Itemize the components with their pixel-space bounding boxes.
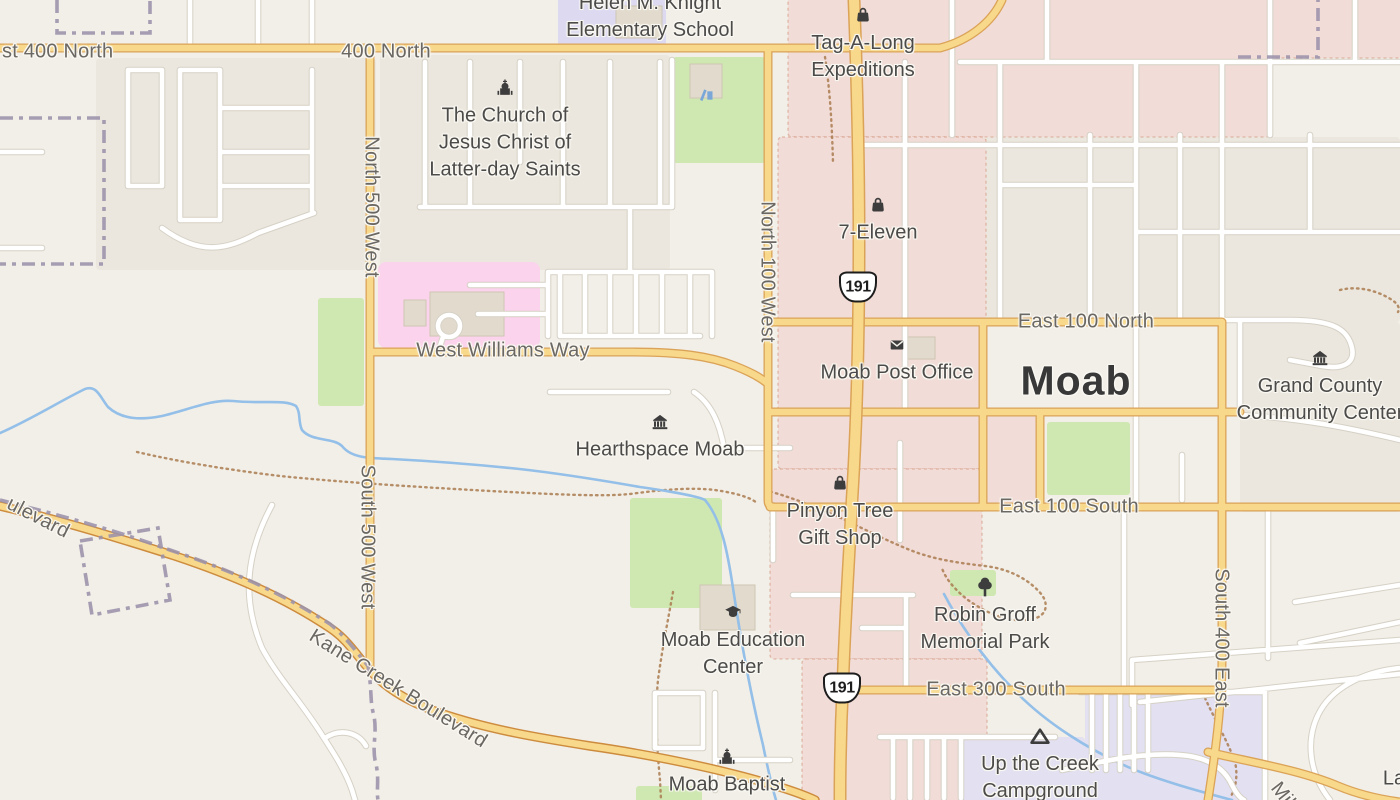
- poi-label-moab-baptist: Moab Baptist: [669, 772, 786, 799]
- poi-label-pinyon-tree-gift-shop: Pinyon TreeGift Shop: [787, 498, 894, 552]
- church-icon: [717, 747, 737, 767]
- street-label-south-500-west: South 500 West: [356, 465, 379, 610]
- shopping-bag-icon: [869, 196, 887, 214]
- poi-label-moab-education-center: Moab EducationCenter: [661, 627, 806, 681]
- shopping-bag-icon: [854, 6, 872, 24]
- map-canvas[interactable]: st 400 North400 NorthEast 100 NorthWest …: [0, 0, 1400, 800]
- playground-icon: [696, 84, 716, 104]
- street-label-east-100-north: East 100 North: [1018, 311, 1154, 334]
- graduation-cap-icon: [724, 603, 742, 621]
- museum-icon: [650, 412, 670, 432]
- street-label-north-500-west: North 500 West: [360, 136, 383, 277]
- museum-icon: [1310, 348, 1330, 368]
- envelope-icon: [888, 336, 906, 354]
- street-label-north-100-west: North 100 West: [756, 201, 779, 342]
- church-icon: [495, 78, 515, 98]
- street-label-east-300-south: East 300 South: [926, 679, 1066, 702]
- poi-label-grand-county-community-center: Grand CountyCommunity Center: [1237, 373, 1400, 427]
- tree-icon: [974, 576, 996, 598]
- street-label-400-north: 400 North: [341, 41, 431, 64]
- poi-label-hearthspace-moab: Hearthspace Moab: [576, 437, 745, 464]
- poi-label-moab-post-office: Moab Post Office: [820, 360, 973, 387]
- poi-label-up-the-creek-campground: Up the CreekCampground: [981, 751, 1099, 800]
- poi-label-tag-a-long-expeditions: Tag-A-LongExpeditions: [811, 30, 914, 84]
- street-label-west-williams-way: West Williams Way: [416, 340, 589, 363]
- poi-label-la-partial: La: [1383, 766, 1400, 793]
- poi-label-church-of-jesus-christ: The Church ofJesus Christ ofLatter-day S…: [429, 103, 580, 184]
- poi-label-robin-groff-memorial-park: Robin GroffMemorial Park: [921, 602, 1050, 656]
- poi-label-seven-eleven: 7-Eleven: [839, 220, 918, 247]
- shopping-bag-icon: [831, 474, 849, 492]
- street-label-east-400-north-partial: st 400 North: [2, 41, 113, 64]
- street-label-south-400-east: South 400 East: [1210, 568, 1233, 708]
- poi-label-helen-m-knight-elementary-school: Helen M. KnightElementary School: [566, 0, 734, 44]
- campsite-icon: [1030, 726, 1051, 747]
- street-label-east-100-south: East 100 South: [999, 496, 1139, 519]
- city-label-moab: Moab: [1020, 358, 1131, 405]
